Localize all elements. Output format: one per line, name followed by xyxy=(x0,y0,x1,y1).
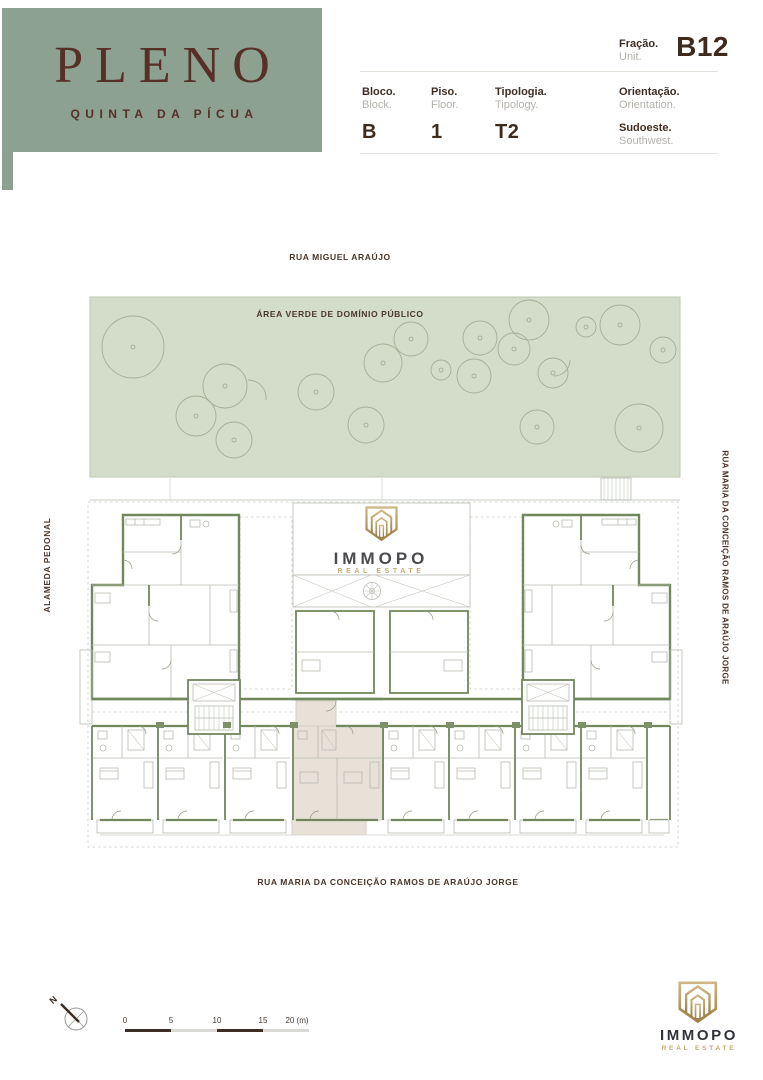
street-label-bottom: RUA MARIA DA CONCEIÇÃO RAMOS DE ARAÚJO J… xyxy=(188,877,588,887)
brand-subtitle: QUINTA DA PÍCUA xyxy=(65,107,258,121)
orientation-value: Sudoeste. xyxy=(619,122,680,135)
field-block: Bloco. Block. B xyxy=(362,86,396,144)
scale-bar-segments xyxy=(125,1029,309,1032)
block-label: Bloco. xyxy=(362,86,396,99)
divider-top xyxy=(360,71,718,72)
green-area xyxy=(90,297,680,477)
block-value: B xyxy=(362,121,396,144)
orientation-label-en: Orientation. xyxy=(619,99,680,112)
watermark-name: IMMOPO xyxy=(281,550,481,567)
street-label-right: RUA MARIA DA CONCEIÇÃO RAMOS DE ARAÚJO J… xyxy=(721,408,730,728)
stair-core-left xyxy=(188,680,240,734)
immopo-footer-icon xyxy=(680,983,716,1022)
floor-value: 1 xyxy=(431,121,459,144)
floor-label: Piso. xyxy=(431,86,459,99)
footer-logo-name: IMMOPO xyxy=(649,1028,749,1044)
immopo-watermark: IMMOPO REAL ESTATE xyxy=(281,550,481,575)
sidewalk xyxy=(90,478,680,500)
scale-tick-5: 5 xyxy=(169,1016,173,1025)
street-label-left: ALAMEDA PEDONAL xyxy=(42,465,52,665)
floor-label-en: Floor. xyxy=(431,99,459,112)
footer-logo-tagline: REAL ESTATE xyxy=(649,1045,749,1052)
scale-tick-10: 10 xyxy=(213,1016,222,1025)
typology-label-en: Tipology. xyxy=(495,99,547,112)
floor-plan-svg xyxy=(0,0,763,1080)
green-area-label: ÁREA VERDE DE DOMÍNIO PÚBLICO xyxy=(190,309,490,319)
plan-sheet: PLENO QUINTA DA PÍCUA Fração. Unit. B12 … xyxy=(0,0,763,1080)
block-label-en: Block. xyxy=(362,99,396,112)
scale-tick-15: 15 xyxy=(259,1016,268,1025)
typology-value: T2 xyxy=(495,121,547,144)
divider-bottom xyxy=(360,153,718,154)
street-label-top: RUA MIGUEL ARAÚJO xyxy=(190,252,490,262)
brand-header: PLENO QUINTA DA PÍCUA xyxy=(2,8,322,152)
orientation-value-en: Southwest. xyxy=(619,135,680,148)
fraction-label: Fração. xyxy=(619,38,658,51)
north-arrow-icon xyxy=(61,1004,87,1030)
spiral-stair xyxy=(364,583,381,600)
courtyard xyxy=(293,575,470,607)
unit-b12-highlight xyxy=(292,699,383,835)
field-floor: Piso. Floor. 1 xyxy=(431,86,459,144)
field-orientation: Orientação. Orientation. Sudoeste. South… xyxy=(619,86,680,148)
typology-label: Tipologia. xyxy=(495,86,547,99)
fraction-value: B12 xyxy=(676,31,729,63)
scale-tick-0: 0 xyxy=(123,1016,127,1025)
scale-tick-20: 20 (m) xyxy=(285,1016,308,1025)
stair-core-right xyxy=(522,680,574,734)
immopo-footer-logo: IMMOPO REAL ESTATE xyxy=(649,1028,749,1052)
brand-name: PLENO xyxy=(42,40,282,92)
corridor xyxy=(92,699,670,726)
watermark-tagline: REAL ESTATE xyxy=(281,568,481,575)
brand-accent-strip xyxy=(2,152,13,190)
field-typology: Tipologia. Tipology. T2 xyxy=(495,86,547,144)
orientation-label: Orientação. xyxy=(619,86,680,99)
fraction-label-group: Fração. Unit. xyxy=(619,38,658,64)
fraction-label-en: Unit. xyxy=(619,51,658,64)
